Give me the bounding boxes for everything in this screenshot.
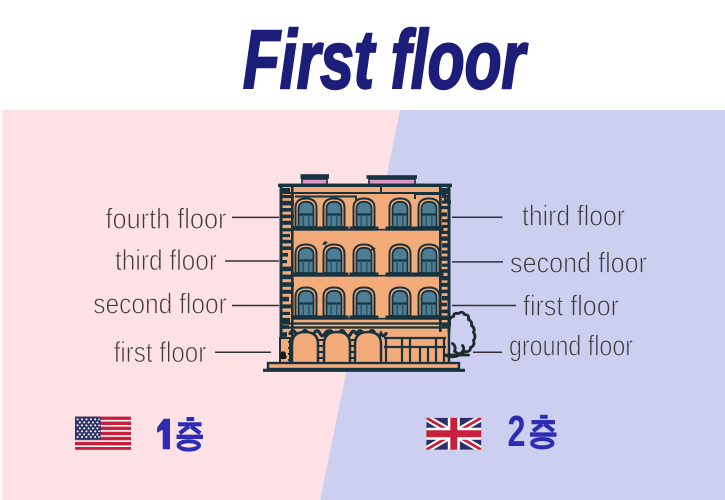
svg-text:third floor: third floor [115, 245, 217, 277]
svg-text:third floor: third floor [522, 201, 625, 233]
svg-text:first floor: first floor [523, 291, 619, 323]
svg-text:second floor: second floor [93, 289, 227, 321]
svg-text:first floor: first floor [114, 337, 207, 369]
svg-text:fourth floor: fourth floor [106, 203, 227, 235]
svg-text:First floor: First floor [243, 13, 528, 106]
svg-text:second floor: second floor [510, 247, 647, 279]
svg-text:ground floor: ground floor [509, 330, 633, 362]
svg-text:2: 2 [508, 407, 526, 456]
